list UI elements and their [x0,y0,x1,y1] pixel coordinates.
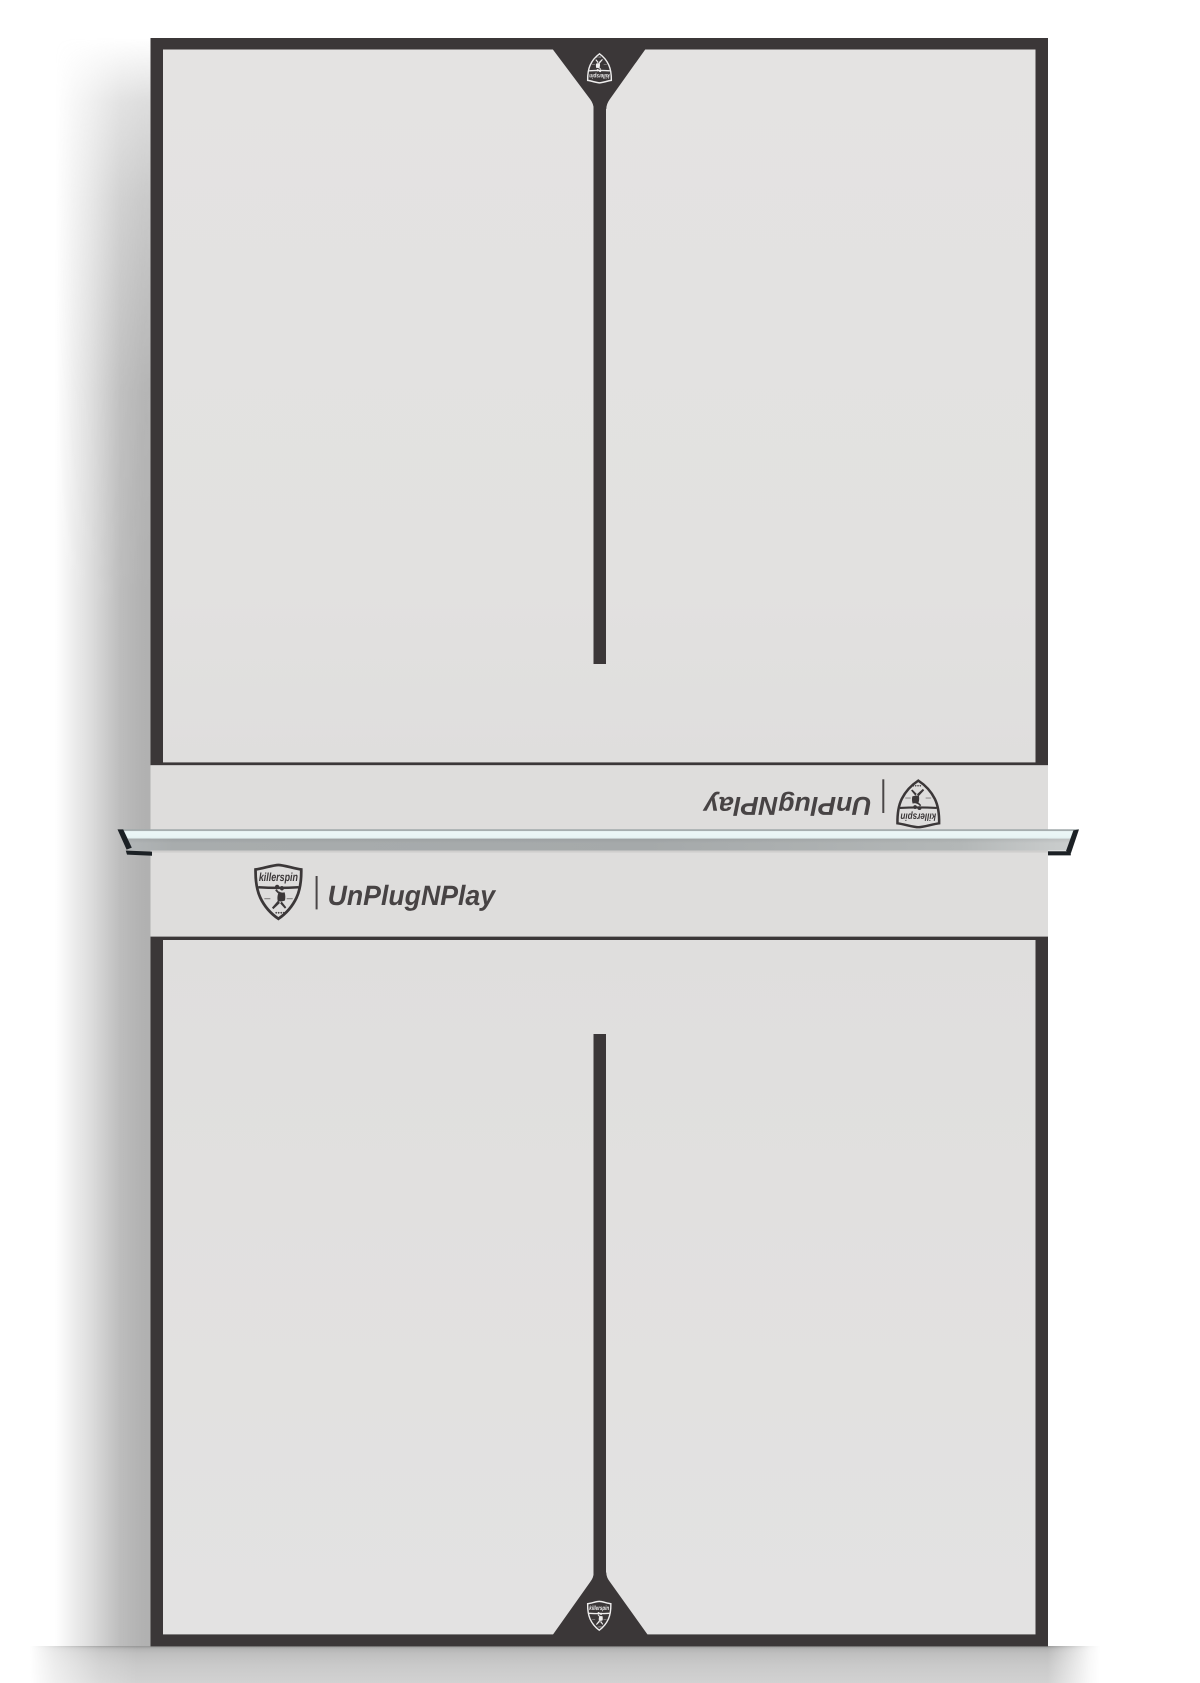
svg-text:UnPlugNPlay: UnPlugNPlay [328,880,497,911]
svg-text:UnPlugNPlay: UnPlugNPlay [702,791,872,821]
